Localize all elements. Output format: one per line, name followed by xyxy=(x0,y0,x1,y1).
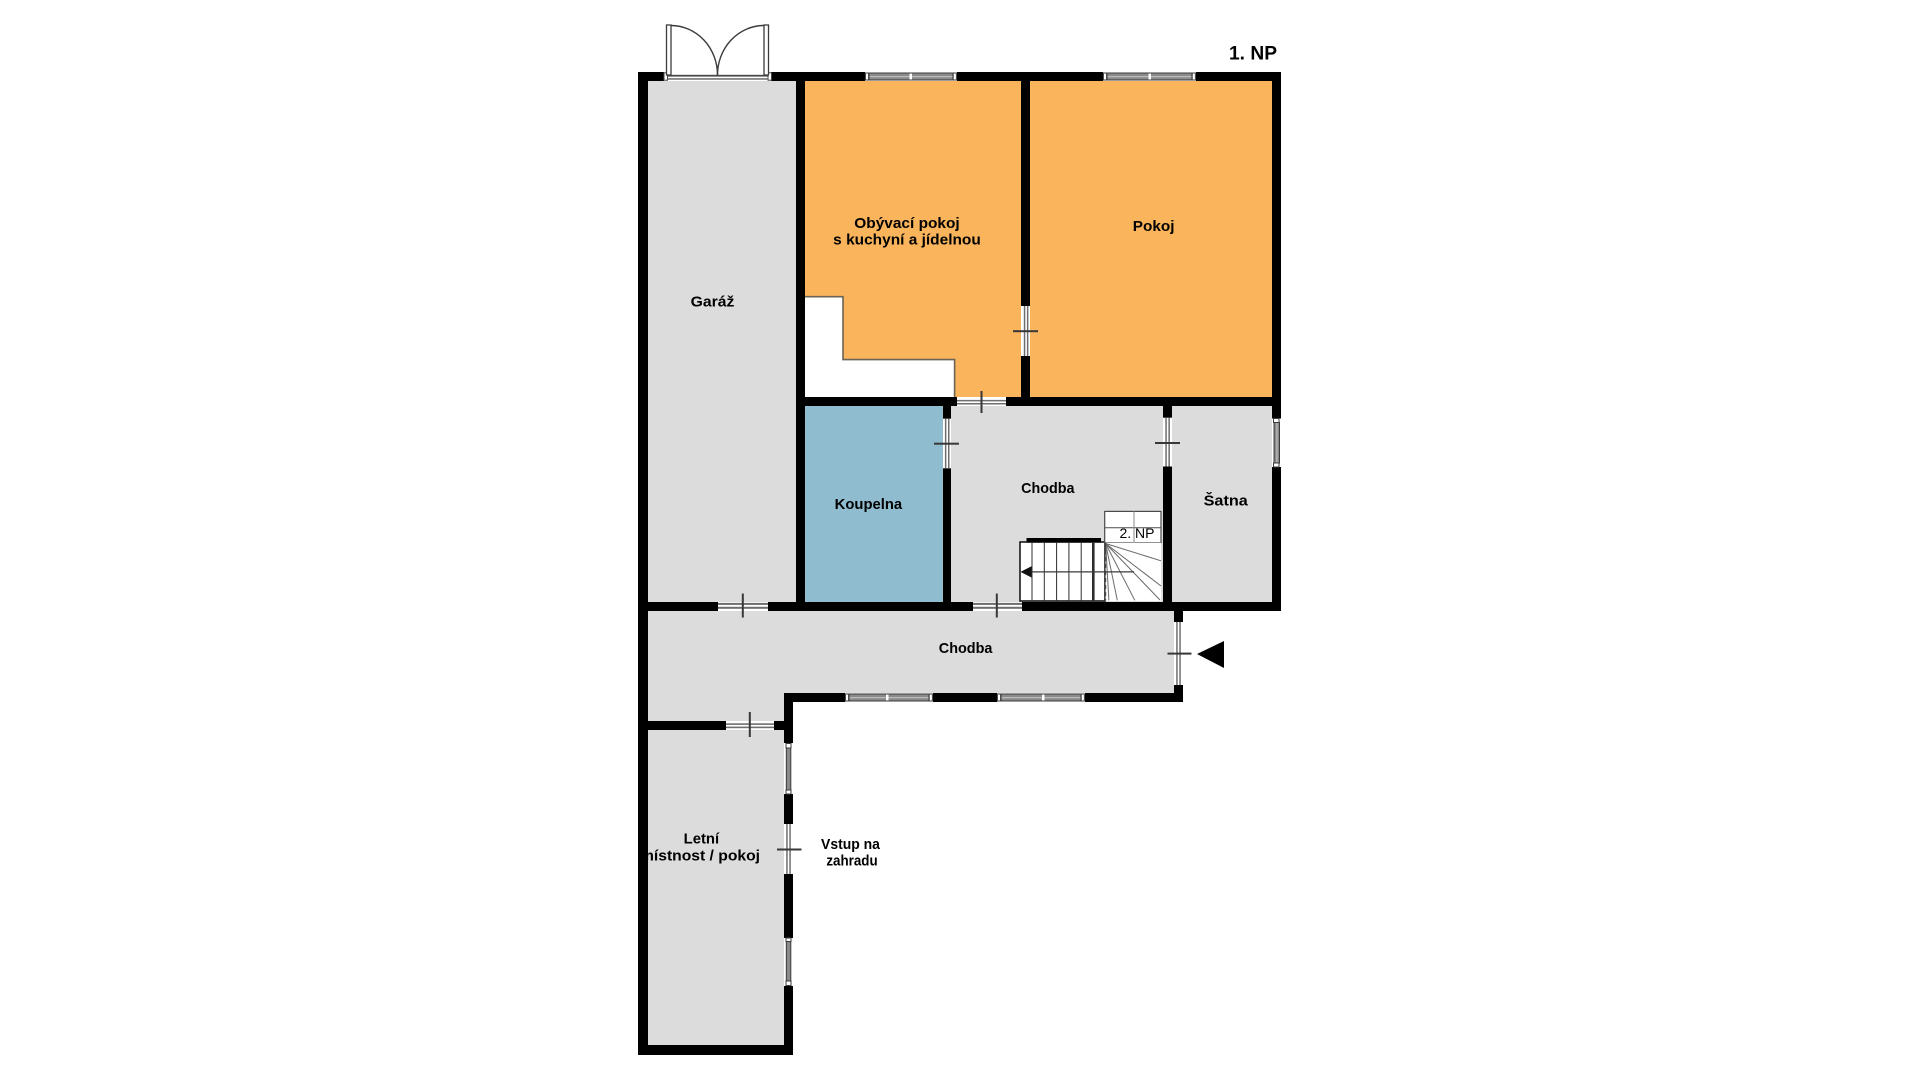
svg-text:Chodba: Chodba xyxy=(939,640,993,657)
svg-text:Koupelna: Koupelna xyxy=(835,496,903,513)
svg-text:Vstup na: Vstup na xyxy=(821,836,881,853)
svg-text:s kuchyní a jídelnou: s kuchyní a jídelnou xyxy=(833,232,981,249)
svg-text:Obývací pokoj: Obývací pokoj xyxy=(854,215,959,232)
svg-text:Šatna: Šatna xyxy=(1204,492,1249,510)
svg-text:2. NP: 2. NP xyxy=(1120,525,1155,541)
svg-text:Chodba: Chodba xyxy=(1021,480,1075,497)
svg-text:místnost / pokoj: místnost / pokoj xyxy=(640,848,760,865)
svg-text:zahradu: zahradu xyxy=(826,852,877,869)
svg-text:Garáž: Garáž xyxy=(691,293,735,310)
svg-text:1. NP: 1. NP xyxy=(1229,44,1277,65)
svg-text:Pokoj: Pokoj xyxy=(1133,218,1175,235)
svg-text:Letní: Letní xyxy=(684,831,720,848)
